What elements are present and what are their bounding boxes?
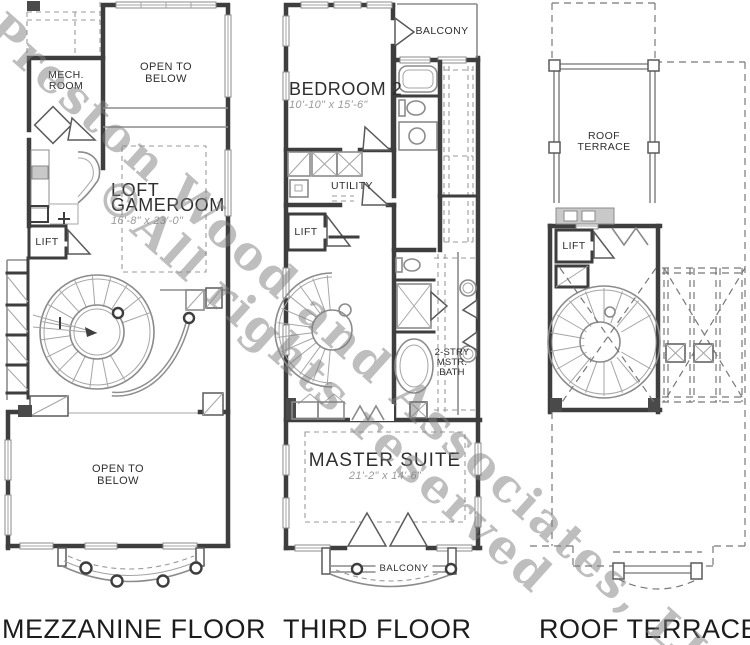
third-master-bath — [394, 205, 477, 418]
label-line: MASTER SUITE — [309, 452, 461, 469]
label-line: BALCONY — [376, 563, 433, 574]
third-utility — [286, 152, 394, 205]
label-master-suite: MASTER SUITE 21'-2" x 14'-6" — [309, 452, 461, 483]
roof-terrace-plan — [530, 3, 745, 589]
roof-pergola — [662, 268, 745, 402]
third-closet — [440, 66, 478, 250]
label-master-bath: 2-STRY MSTR. BATH — [435, 348, 470, 378]
mezzanine-spiral-stair — [33, 275, 154, 389]
label-line: BELOW — [92, 476, 144, 488]
third-bedroom-wall — [286, 127, 394, 150]
label-line: BEDROOM 2 — [289, 82, 402, 97]
title-roof-terrace: ROOF TERRACE — [539, 614, 750, 645]
label-balcony-bottom: BALCONY — [376, 563, 433, 575]
label-line: TERRACE — [578, 142, 631, 153]
mezzanine-bay — [58, 548, 204, 587]
label-open-below-bottom: OPEN TO BELOW — [92, 464, 144, 487]
mezzanine-closet-strip — [7, 258, 28, 400]
room-dimension: 10'-10" x 15'-6" — [289, 99, 402, 111]
label-bedroom2: BEDROOM 2 10'-10" x 15'-6" — [289, 82, 402, 111]
mezzanine-kitchen — [29, 140, 100, 226]
label-lift-third: LIFT — [294, 227, 317, 238]
label-line: OPEN TO — [140, 62, 192, 74]
third-mid-wall — [286, 398, 480, 421]
label-line: ROOM — [48, 81, 84, 92]
label-open-below-top: OPEN TO BELOW — [140, 62, 192, 85]
mezzanine-dashed-entry — [27, 1, 100, 56]
label-line: BELOW — [140, 74, 192, 86]
label-lift-mezzanine: LIFT — [35, 237, 58, 248]
label-line: OPEN TO — [92, 464, 144, 476]
room-dimension: 16'-8" x 23'-0" — [111, 215, 225, 227]
label-roof-terrace-room: ROOF TERRACE — [578, 131, 631, 153]
room-dimension: 21'-2" x 14'-6" — [309, 471, 461, 483]
label-utility: UTILITY — [331, 181, 373, 192]
floor-plan-sheet: OPEN TO BELOW MECH. ROOM LOFT GAMEROOM 1… — [0, 0, 750, 645]
title-third-floor: THIRD FLOOR — [283, 614, 472, 645]
label-line: BATH — [435, 368, 470, 378]
roof-lower-outline — [530, 412, 745, 589]
label-mech-room: MECH. ROOM — [48, 70, 84, 92]
roof-spiral-stair — [548, 268, 660, 405]
third-upper-bath — [394, 48, 440, 196]
roof-lift — [556, 230, 614, 287]
label-loft-gameroom: LOFT GAMEROOM 16'-8" x 23'-0" — [111, 183, 225, 227]
title-mezzanine-floor: MEZZANINE FLOOR — [2, 614, 266, 645]
mezzanine-loft-area — [122, 146, 226, 310]
mezzanine-plan — [5, 1, 231, 587]
label-lift-roof: LIFT — [562, 241, 585, 252]
label-line: GAMEROOM — [111, 198, 225, 213]
label-balcony-top: BALCONY — [416, 26, 469, 37]
